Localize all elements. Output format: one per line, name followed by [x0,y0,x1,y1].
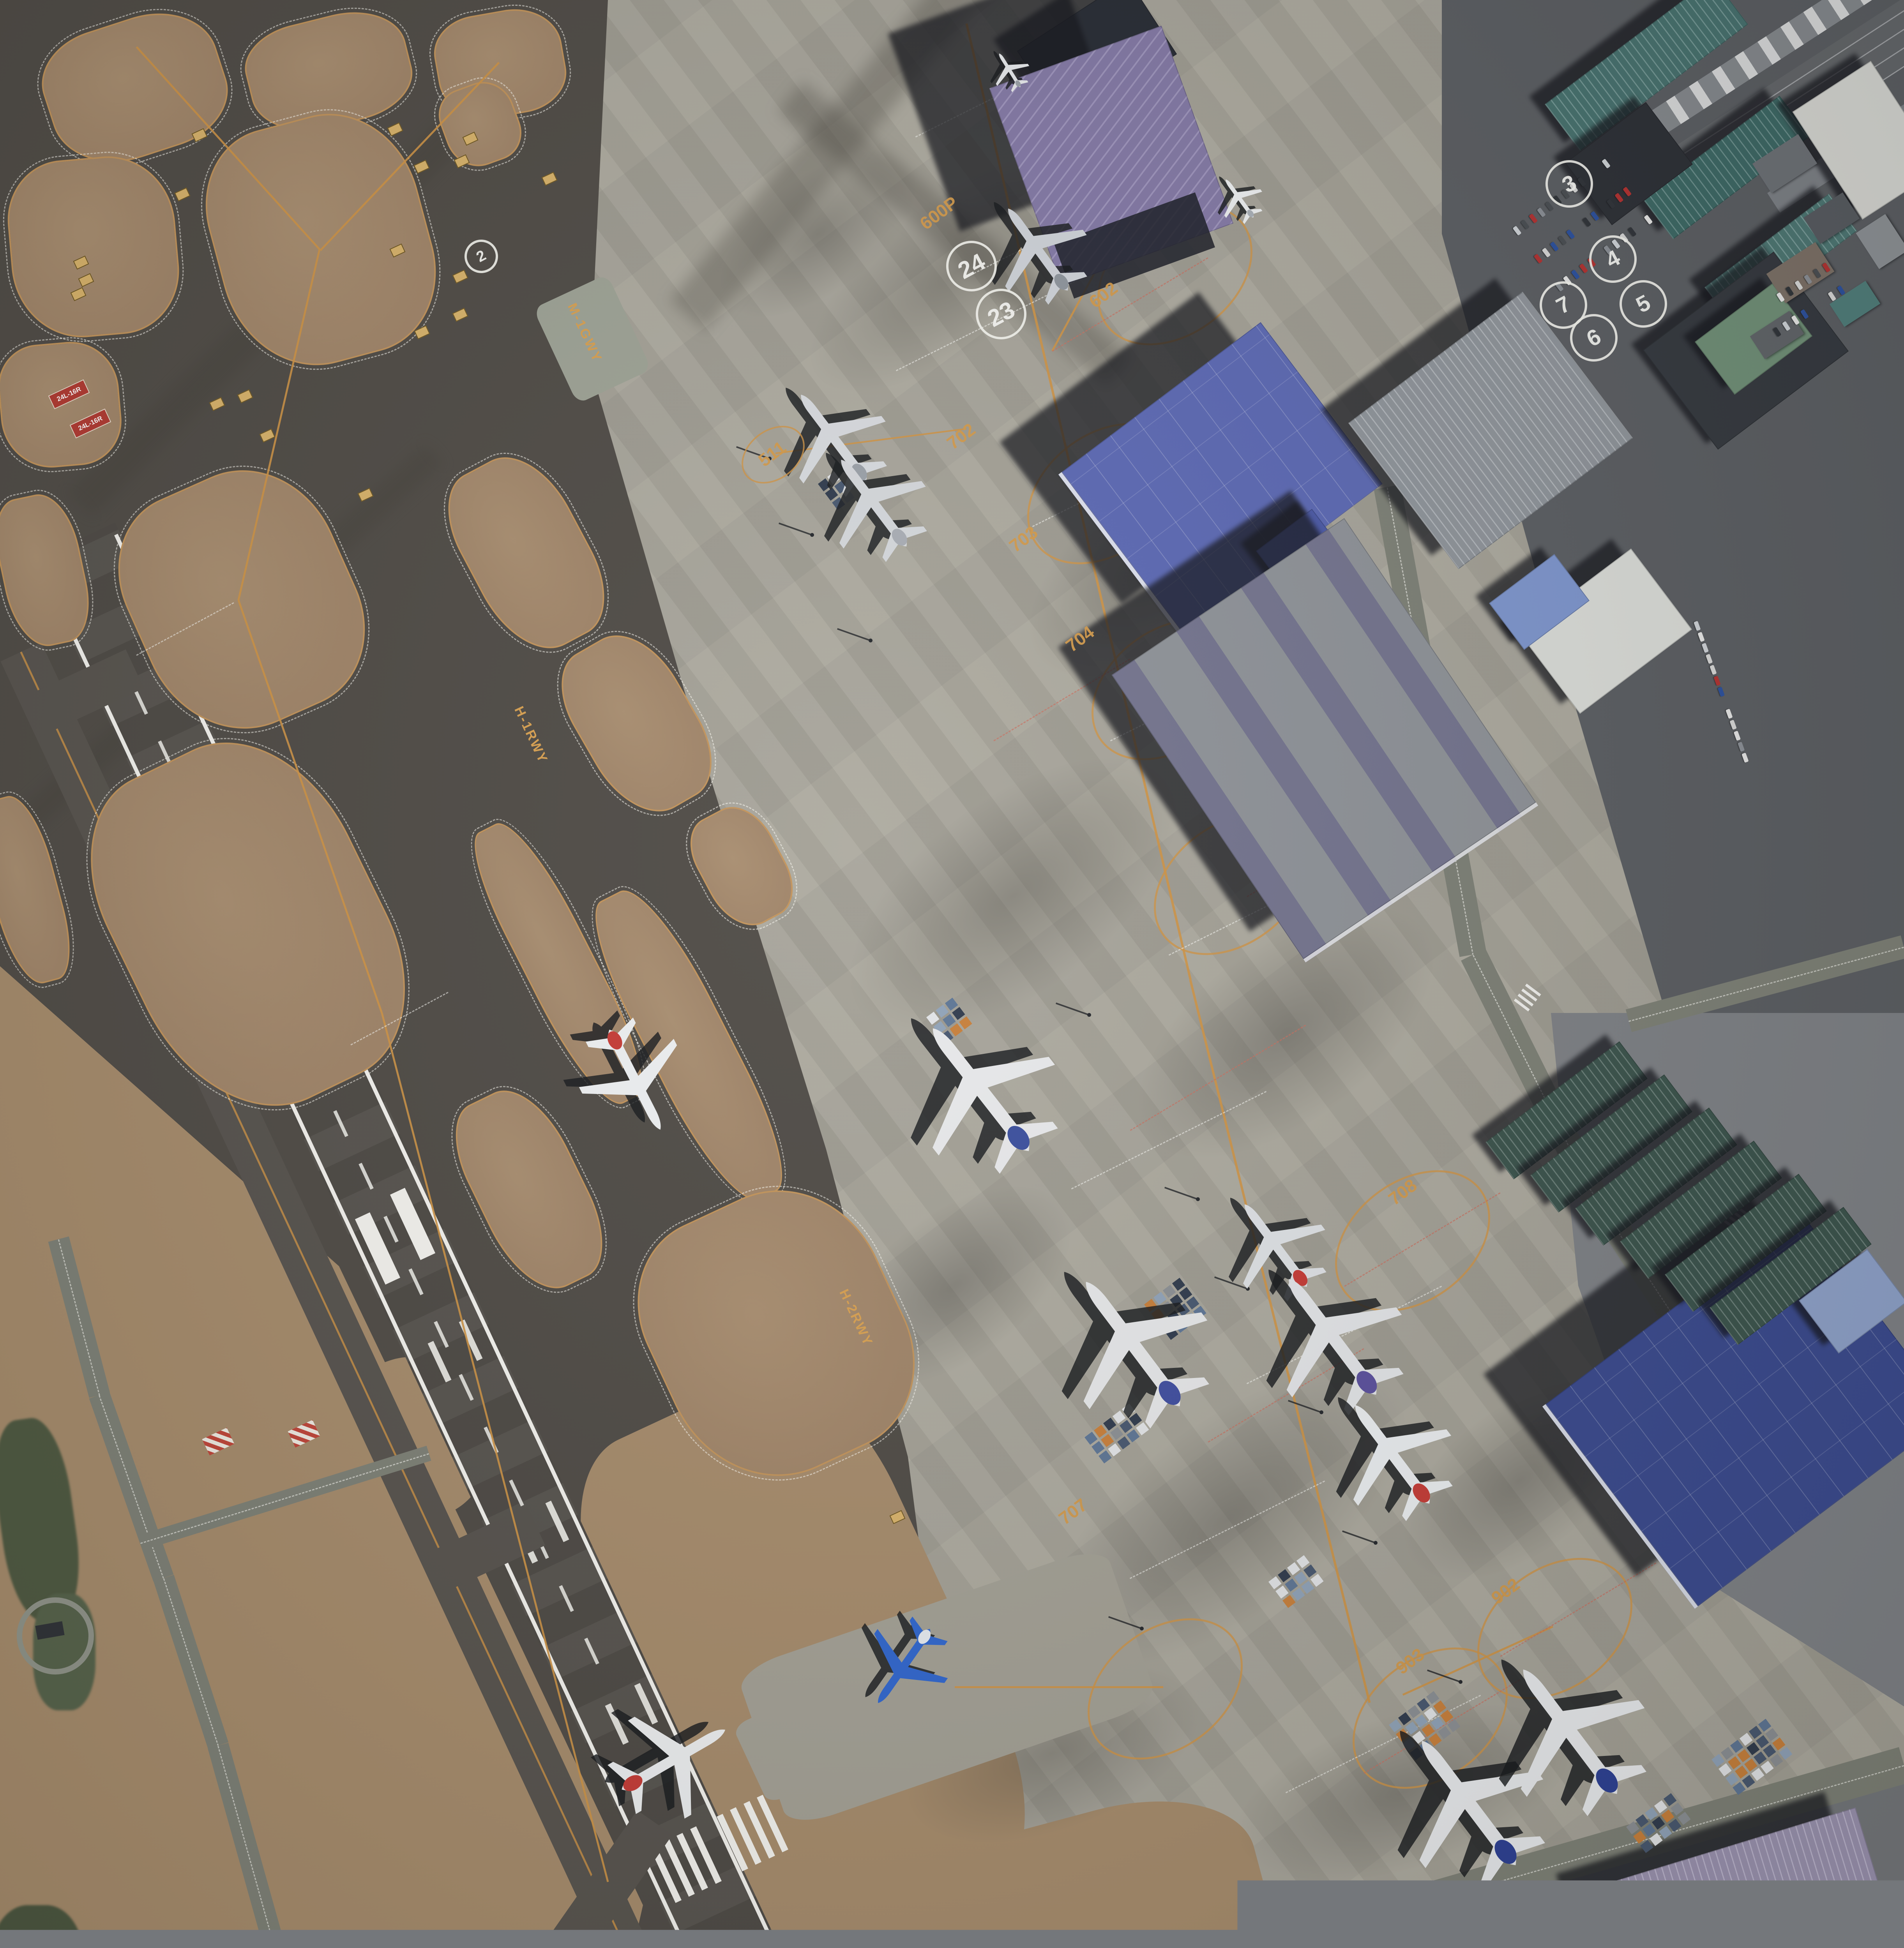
uld-container [1744,1759,1757,1772]
car [1803,274,1812,284]
car [1785,286,1794,296]
uld-container [1728,1756,1741,1770]
satellite-image-airport: 600P602702703704708707902903511224233457… [0,0,1904,1948]
apron-light-mast [810,533,814,537]
uld-container [1661,1810,1674,1823]
uld-container [1650,1833,1663,1846]
uld-container [1294,1572,1307,1585]
car [1571,270,1580,280]
uld-container [1415,1715,1428,1728]
uld-container [1747,1742,1760,1756]
car [1800,309,1809,319]
car [1582,217,1591,227]
car [1776,292,1785,302]
uld-container [1285,1579,1298,1592]
uld-container [1652,1817,1665,1830]
car [1644,215,1653,225]
uld-container [1303,1565,1317,1578]
car [1529,214,1538,224]
car [1791,315,1800,325]
car [1550,242,1559,252]
uld-container [1671,1802,1684,1816]
uld-container [1761,1761,1774,1774]
car [1558,235,1567,245]
uld-container [1405,1722,1418,1735]
uld-container [1770,1754,1783,1767]
apron-light-mast [1140,1627,1144,1630]
uld-container [1643,1824,1656,1837]
uld-container [1737,1749,1750,1763]
uld-container [1311,1574,1324,1587]
car [1537,207,1546,217]
car [1614,193,1623,203]
uld-container [1735,1766,1748,1779]
uld-container [1668,1819,1681,1832]
uld-container [1756,1735,1769,1749]
uld-container [1754,1752,1767,1765]
apron-light-mast [1196,1197,1200,1201]
car [1822,263,1830,273]
uld-container [1765,1728,1779,1741]
car [1521,220,1530,230]
uld-container [1678,1812,1691,1825]
car [1590,211,1599,221]
uld-container [1433,1701,1447,1714]
car [1545,201,1554,212]
car [1794,280,1803,290]
car [1813,268,1821,279]
car [1782,321,1791,331]
car [1828,291,1836,301]
uld-container [1742,1775,1755,1788]
uld-container [1763,1745,1776,1758]
uld-container [1292,1588,1305,1601]
apron-light-mast [869,639,873,642]
uld-container [1424,1708,1437,1721]
car [1837,285,1846,295]
uld-container [1751,1768,1764,1781]
apron-light-mast [1087,1013,1091,1017]
car [1542,247,1551,258]
uld-container [1659,1826,1672,1839]
uld-container [1779,1747,1793,1760]
uld-container [1772,1737,1786,1750]
car [1623,187,1632,197]
car [1607,199,1616,209]
car [1628,227,1637,237]
uld-container [1301,1581,1314,1594]
apron-light-mast [1459,1680,1462,1684]
car [1602,159,1611,169]
car [1566,229,1575,239]
car [1579,263,1588,273]
